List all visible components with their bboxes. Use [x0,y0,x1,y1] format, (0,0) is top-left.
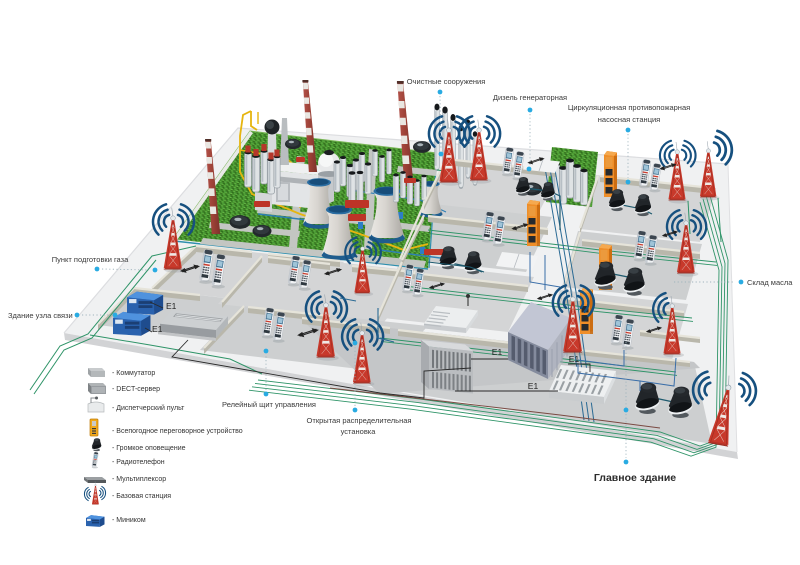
svg-text:- Диспетчерский пульт: - Диспетчерский пульт [112,404,185,412]
svg-text:Очистные сооружения: Очистные сооружения [407,77,486,86]
svg-text:E1: E1 [152,324,163,334]
svg-text:- Радиотелефон: - Радиотелефон [112,459,165,466]
svg-text:Пункт подготовки газа: Пункт подготовки газа [52,255,129,264]
svg-text:Здание узла связи: Здание узла связи [8,311,73,320]
svg-text:Релейный щит управления: Релейный щит управления [222,400,316,409]
svg-text:- DECT-сервер: - DECT-сервер [112,386,160,393]
svg-text:Дизель генераторная: Дизель генераторная [493,93,567,102]
svg-text:установка: установка [341,427,377,436]
svg-text:E1: E1 [492,347,503,357]
svg-text:Открытая распределительная: Открытая распределительная [307,416,412,425]
svg-text:Склад масла: Склад масла [747,278,793,287]
svg-text:Циркуляционная противопожарная: Циркуляционная противопожарная [568,103,690,112]
svg-text:E1: E1 [166,301,177,311]
svg-text:насосная станция: насосная станция [598,115,661,124]
svg-text:E1: E1 [528,381,539,391]
svg-text:- Всепогодное переговорное уст: - Всепогодное переговорное устройство [112,427,243,435]
svg-text:E1: E1 [569,354,580,364]
svg-text:- Миником: - Миником [112,517,146,524]
svg-text:- Громкое оповещение: - Громкое оповещение [112,445,186,452]
svg-text:- Коммутатор: - Коммутатор [112,370,155,377]
svg-text:- Базовая станция: - Базовая станция [112,493,171,500]
svg-text:- Мультиплексор: - Мультиплексор [112,476,166,483]
svg-text:Главное здание: Главное здание [594,472,676,484]
